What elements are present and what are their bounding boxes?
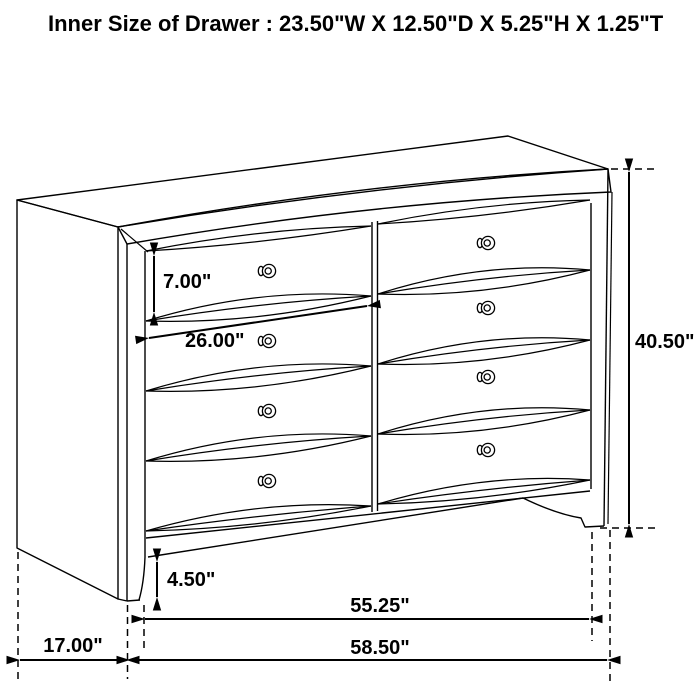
page-title: Inner Size of Drawer : 23.50"W X 12.50"D… xyxy=(48,11,664,36)
dimension-label: 40.50" xyxy=(635,331,695,353)
dresser-drawing xyxy=(17,136,612,601)
dimension-overall-height: 40.50" xyxy=(600,169,695,528)
dimension-label: 26.00" xyxy=(185,330,245,352)
drawer-knob xyxy=(258,404,275,417)
drawer-knob xyxy=(258,264,275,277)
drawer-knob xyxy=(258,334,275,347)
dimension-base-height: 4.50" xyxy=(157,562,215,597)
dimension-label: 58.50" xyxy=(350,637,410,659)
dimension-foot-span: 55.25" xyxy=(145,595,589,619)
dimension-drawer-height: 7.00" xyxy=(154,256,211,312)
dimension-label: 4.50" xyxy=(167,569,215,591)
drawer-knob xyxy=(477,301,494,314)
diagram-page: Inner Size of Drawer : 23.50"W X 12.50"D… xyxy=(0,0,700,700)
projection-dashed-lines xyxy=(18,530,610,681)
dimension-label: 7.00" xyxy=(163,271,211,293)
dresser-dimension-diagram: Inner Size of Drawer : 23.50"W X 12.50"D… xyxy=(0,0,700,700)
drawer-knob xyxy=(258,474,275,487)
dimension-label: 55.25" xyxy=(350,595,410,617)
drawer-knob xyxy=(477,370,494,383)
dresser-front-frame xyxy=(127,170,612,601)
drawer-knob xyxy=(477,236,494,249)
dimension-depth: 17.00" xyxy=(20,635,126,660)
dimension-annotations: 7.00" 26.00" 40.50" 4.50" 55.25" xyxy=(18,169,695,681)
dresser-side-panel xyxy=(17,200,127,601)
drawer-knob xyxy=(477,443,494,456)
dimension-overall-width: 58.50" xyxy=(130,637,607,660)
dimension-label: 17.00" xyxy=(43,635,103,657)
dimension-drawer-width: 26.00" xyxy=(149,306,367,352)
